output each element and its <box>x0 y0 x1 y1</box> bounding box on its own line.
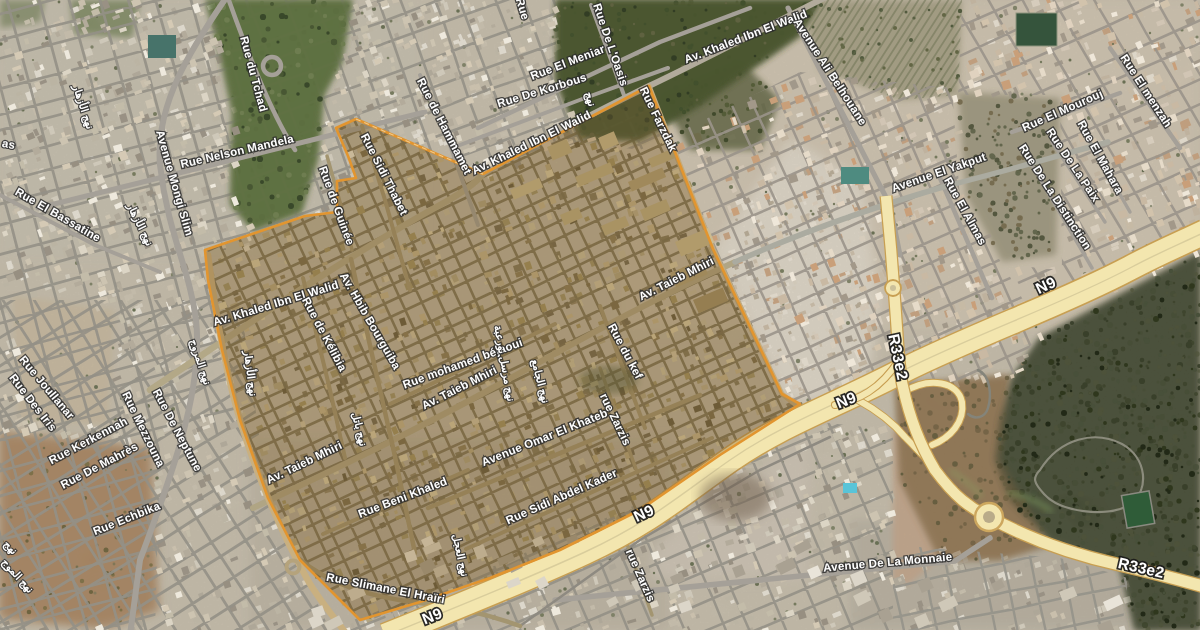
svg-text:as: as <box>1 137 16 151</box>
